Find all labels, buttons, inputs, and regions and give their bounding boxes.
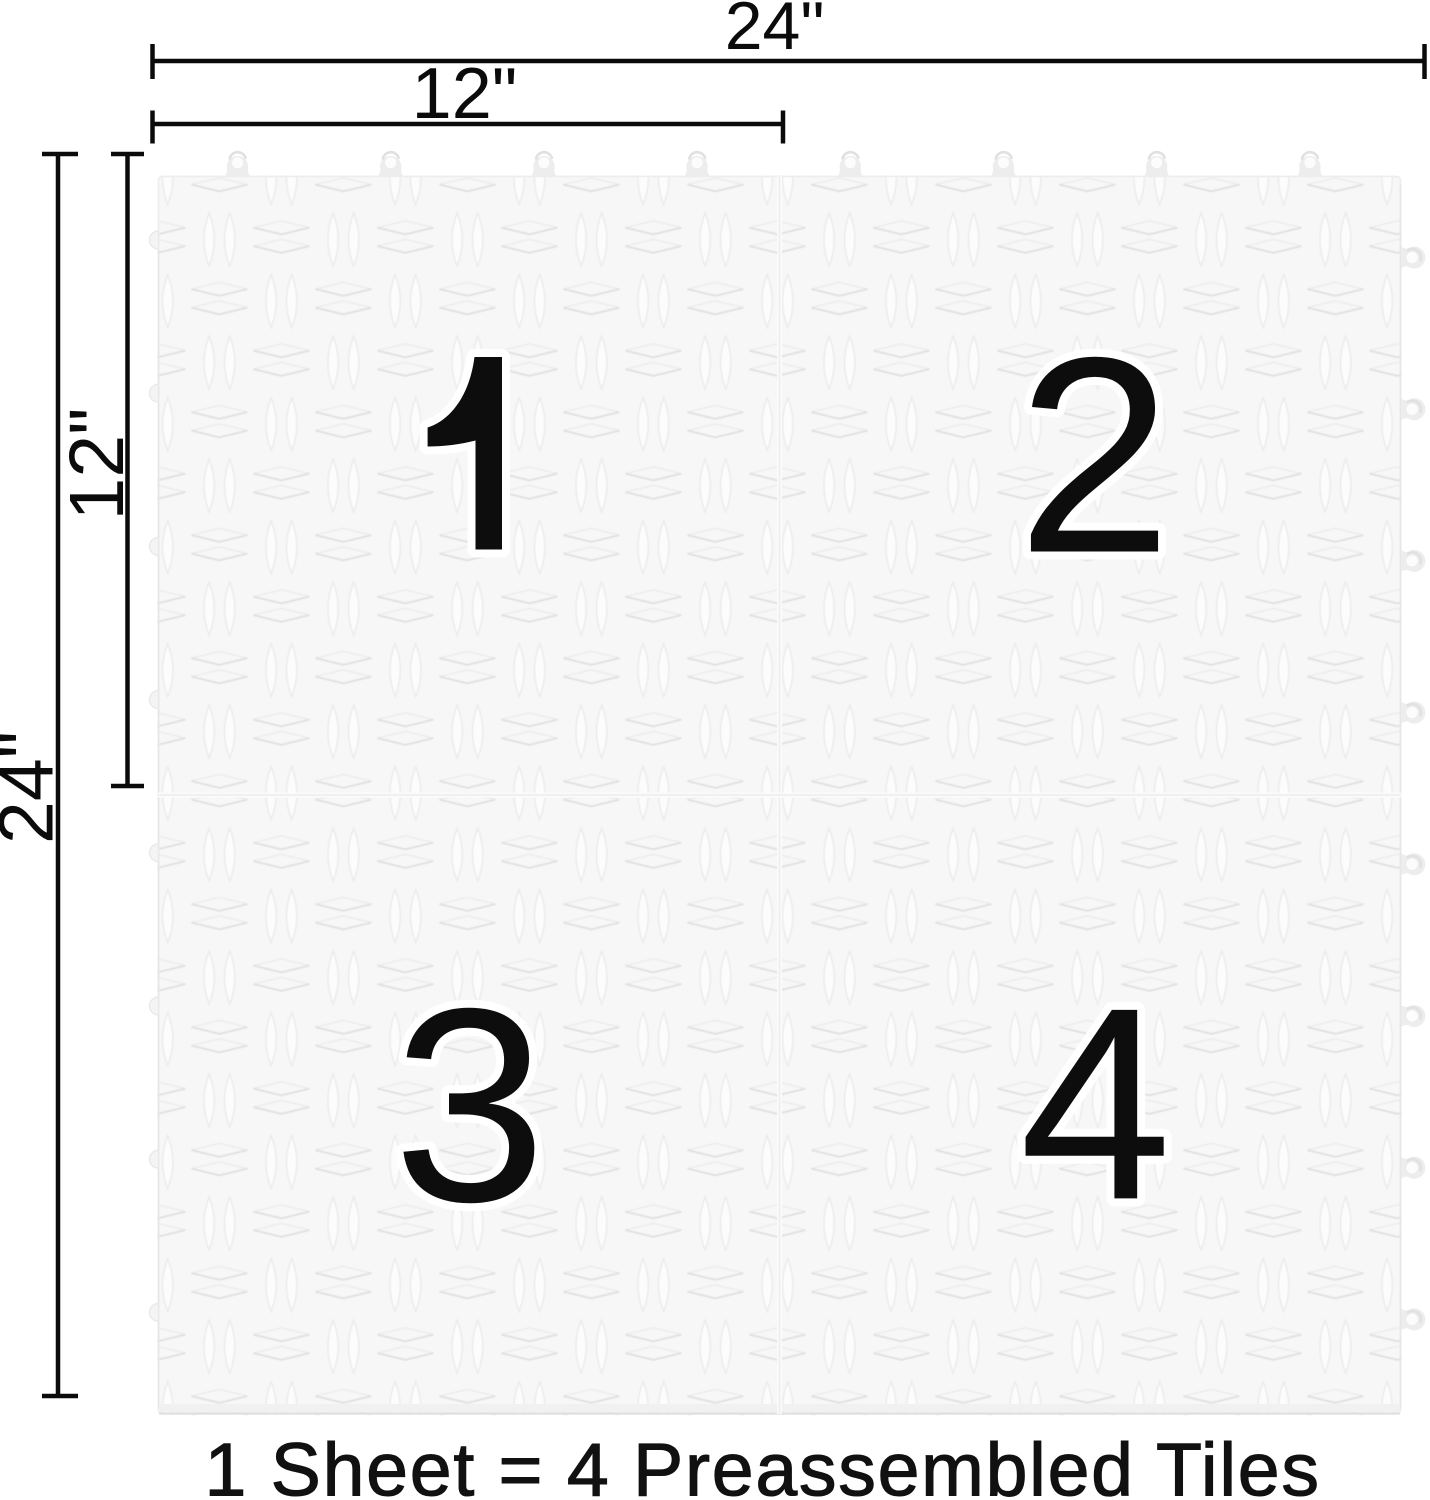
svg-text:12": 12" bbox=[412, 54, 518, 134]
svg-text:1 Sheet = 4 Preassembled Tiles: 1 Sheet = 4 Preassembled Tiles bbox=[204, 1428, 1320, 1500]
svg-text:3: 3 bbox=[393, 952, 547, 1260]
svg-text:24": 24" bbox=[0, 731, 70, 844]
svg-text:2: 2 bbox=[1017, 300, 1172, 612]
svg-text:24": 24" bbox=[725, 0, 825, 64]
svg-text:12": 12" bbox=[54, 408, 140, 521]
svg-text:4: 4 bbox=[1019, 951, 1171, 1257]
